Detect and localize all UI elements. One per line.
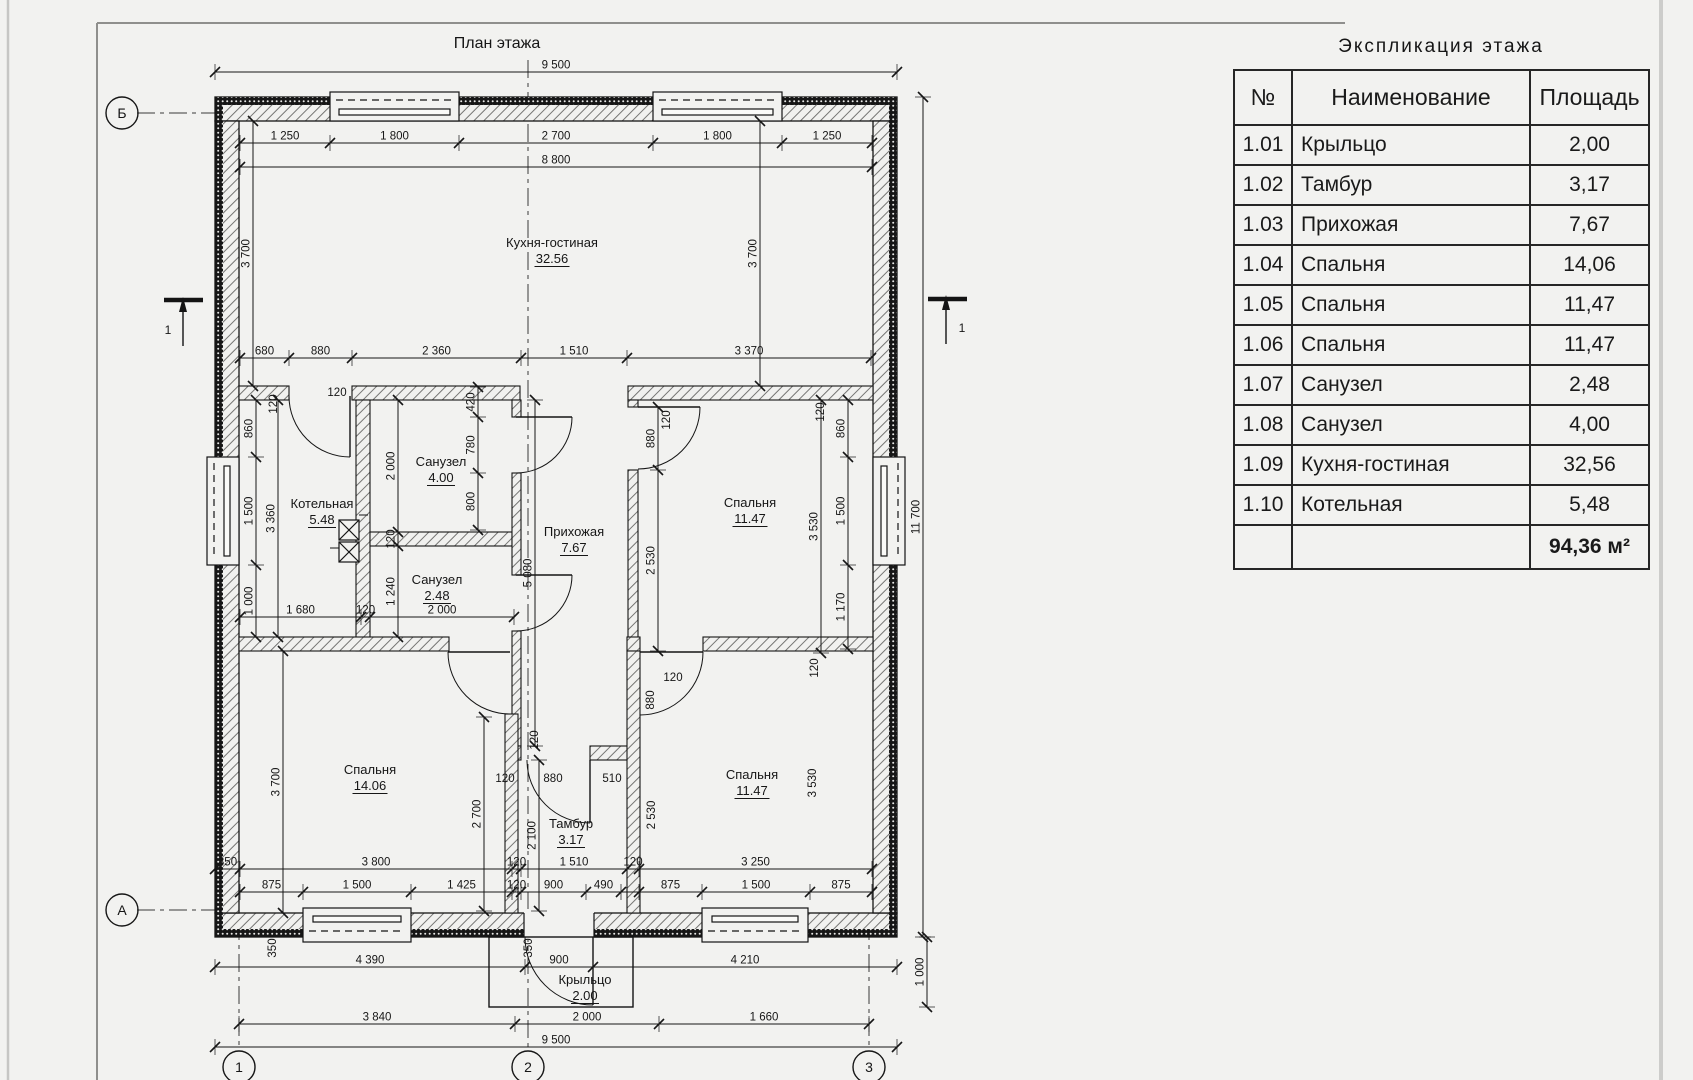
cell-area: 32,56 [1530,445,1649,485]
room-name: Спальня [344,762,396,777]
section-mark-left [164,297,203,346]
dim-text: 2 000 [386,452,398,481]
room-area: 14.06 [354,778,387,793]
door-wc-1 [516,417,572,473]
dim-text: 120 [495,773,514,785]
axis-label: 1 [235,1059,243,1075]
dim-text: 120 [529,730,541,749]
cell-room-name: Кухня-гостиная [1292,445,1530,485]
dim-text: 2 530 [646,801,658,830]
dim-text: 8 800 [542,155,571,167]
dim-text: 1 510 [560,346,589,358]
dim-text: 9 500 [542,60,571,72]
dim-text: 2 700 [542,131,571,143]
table-row: 1.08Санузел4,00 [1234,405,1649,445]
cell-room-name: Спальня [1292,245,1530,285]
table-total-row: 94,36 м² [1234,525,1649,569]
axis-label: 2 [524,1059,532,1075]
dim-text: 900 [544,880,563,892]
room-name: Прихожая [544,524,604,539]
room-area: 3.17 [558,832,583,847]
room-area: 2.00 [572,988,597,1003]
dim-text: 880 [543,773,562,785]
table-row: 1.01Крыльцо2,00 [1234,125,1649,165]
table-row: 1.02Тамбур3,17 [1234,165,1649,205]
table-header: № [1234,70,1292,125]
explication-table: №НаименованиеПлощадь1.01Крыльцо2,001.02Т… [1233,69,1650,570]
plan-title: План этажа [454,35,541,52]
dim-text: 875 [661,880,680,892]
section-mark-right [928,295,967,344]
table-row: 1.10Котельная5,48 [1234,485,1649,525]
dim-text: 680 [255,346,274,358]
dim-text: 1 250 [271,131,300,143]
cell-number: 1.07 [1234,365,1292,405]
cell-number: 1.10 [1234,485,1292,525]
section-label: 1 [959,321,966,335]
cell-number: 1.04 [1234,245,1292,285]
table-row: 1.03Прихожая7,67 [1234,205,1649,245]
dim-text: 120 [663,672,682,684]
cell-area: 4,00 [1530,405,1649,445]
dim-text: 120 [356,605,375,617]
window-top-left [330,92,459,121]
cell-room-name: Спальня [1292,285,1530,325]
cell-area: 14,06 [1530,245,1649,285]
dim-text: 420 [466,392,478,411]
dim-text: 120 [809,658,821,677]
cell-area: 2,48 [1530,365,1649,405]
room-area: 5.48 [309,512,334,527]
dim-text: 120 [327,387,346,399]
room-name: Спальня [726,767,778,782]
room-name: Котельная [291,496,354,511]
dim-text: 3 530 [807,769,819,798]
dim-text: 780 [466,435,478,454]
cell-room-name: Тамбур [1292,165,1530,205]
dim-text: 11 700 [911,500,923,534]
cell-area: 3,17 [1530,165,1649,205]
explication-panel: Экспликация этажа №НаименованиеПлощадь1.… [1233,36,1649,570]
dim-text: 880 [311,346,330,358]
window-top-right [653,92,782,121]
axis-label: А [117,902,127,918]
cell-number: 1.06 [1234,325,1292,365]
cell-room-name: Прихожая [1292,205,1530,245]
dim-text: 510 [602,773,621,785]
dim-text: 120 [507,857,526,869]
cell-room-name: Котельная [1292,485,1530,525]
dim-text: 5 080 [523,559,535,588]
dim-text: 120 [661,410,673,429]
table-header-row: №НаименованиеПлощадь [1234,70,1649,125]
room-area: 7.67 [561,540,586,555]
table-row: 1.06Спальня11,47 [1234,325,1649,365]
window-bottom-left [303,908,411,942]
dim-text: 120 [386,529,398,548]
room-area: 4.00 [428,470,453,485]
dim-text: 3 840 [363,1012,392,1024]
room-area: 32.56 [536,251,569,266]
cell-area: 7,67 [1530,205,1649,245]
table-row: 1.09Кухня-гостиная32,56 [1234,445,1649,485]
table-header: Наименование [1292,70,1530,125]
dim-text: 1 660 [750,1012,779,1024]
dim-text: 880 [646,429,658,448]
dim-text: 1 250 [813,131,842,143]
dim-text: 3 800 [362,857,391,869]
dim-text: 9 500 [542,1035,571,1047]
dim-text: 880 [645,690,657,709]
room-area: 11.47 [734,511,766,526]
cell-area: 11,47 [1530,325,1649,365]
dim-text: 120 [815,402,827,421]
dim-text: 3 530 [809,512,821,541]
dim-text: 1 000 [915,958,927,987]
section-marks [164,295,967,346]
door-bedroom-bottom-left [448,652,510,714]
dim-text: 900 [549,955,568,967]
cell-number: 1.08 [1234,405,1292,445]
table-row: 1.04Спальня14,06 [1234,245,1649,285]
door-hall-tambour [527,760,590,823]
cell-number: 1.01 [1234,125,1292,165]
dim-text: 1 800 [380,131,409,143]
door-boiler-room [289,396,350,457]
dim-text: 3 370 [735,346,764,358]
dim-text: 875 [262,880,281,892]
dim-text: 2 100 [527,821,539,850]
dim-text: 800 [466,492,478,511]
dim-text: 120 [623,857,642,869]
dim-text: 490 [594,880,613,892]
dim-text: 2 700 [472,800,484,829]
room-name: Кухня-гостиная [506,235,598,250]
window-left [207,457,239,565]
cell-number: 1.02 [1234,165,1292,205]
explication-title: Экспликация этажа [1233,36,1649,58]
dim-text: 1 000 [244,587,256,616]
room-area: 2.48 [424,588,449,603]
table-row: 1.05Спальня11,47 [1234,285,1649,325]
axis-label: Б [117,105,126,121]
dim-text: 1 240 [386,577,398,606]
dim-text: 3 250 [741,857,770,869]
cell-total-area: 94,36 м² [1530,525,1649,569]
dim-text: 875 [831,880,850,892]
dim-text: 1 500 [836,497,848,526]
dim-text: 4 210 [731,955,760,967]
dim-text: 4 390 [356,955,385,967]
cell-number: 1.03 [1234,205,1292,245]
dim-text: 120 [268,394,280,413]
dim-text: 1 500 [343,880,372,892]
dim-text: 1 500 [742,880,771,892]
dim-text: 2 530 [646,546,658,575]
dim-text: 350 [523,938,535,957]
room-name: Тамбур [549,816,593,831]
partitions [239,386,873,913]
room-area: 11.47 [736,783,768,798]
cell-room-name: Санузел [1292,365,1530,405]
room-name: Санузел [412,572,463,587]
cell-room-name: Крыльцо [1292,125,1530,165]
dim-text: 1 680 [286,605,315,617]
dim-text: 3 700 [271,768,283,797]
dim-text: 3 700 [241,239,253,268]
dim-text: 2 000 [428,605,457,617]
scanned-floor-plan-sheet: 9 5001 2501 8002 7001 8001 2508 80068088… [0,0,1693,1080]
entrance-opening [524,909,594,940]
cell-room-name: Спальня [1292,325,1530,365]
cell-area: 2,00 [1530,125,1649,165]
dim-text: 860 [244,419,256,438]
dim-text: 350 [267,938,279,957]
dim-text: 350 [218,857,237,869]
room-name: Спальня [724,495,776,510]
dim-text: 1 170 [836,593,848,622]
room-name: Крыльцо [558,972,611,987]
dim-text: 860 [836,419,848,438]
room-name: Санузел [416,454,467,469]
axis-label: 3 [865,1059,873,1075]
dim-text: 2 000 [573,1012,602,1024]
section-label: 1 [165,323,172,337]
cell-area: 11,47 [1530,285,1649,325]
dim-text: 3 700 [748,239,760,268]
dim-text: 1 425 [447,880,476,892]
cell-area: 5,48 [1530,485,1649,525]
cell-number: 1.09 [1234,445,1292,485]
cell-number: 1.05 [1234,285,1292,325]
dim-text: 120 [507,880,526,892]
window-right [873,457,905,565]
dim-text: 1 800 [703,131,732,143]
cell-room-name: Санузел [1292,405,1530,445]
dim-text: 2 360 [422,346,451,358]
dim-text: 1 510 [560,857,589,869]
window-bottom-right [702,908,808,942]
table-row: 1.07Санузел2,48 [1234,365,1649,405]
dim-text: 3 360 [266,504,278,533]
axis-lines [137,60,869,1050]
table-header: Площадь [1530,70,1649,125]
dim-text: 1 500 [244,497,256,526]
